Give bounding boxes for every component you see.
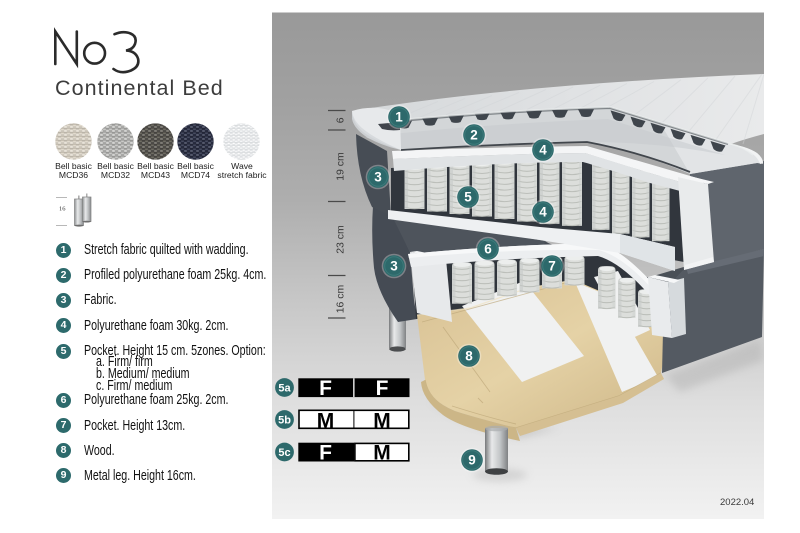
svg-text:M: M — [317, 410, 335, 433]
svg-text:F: F — [376, 377, 389, 400]
svg-text:3: 3 — [390, 259, 398, 274]
svg-text:2: 2 — [470, 128, 478, 143]
svg-text:4: 4 — [539, 143, 547, 158]
svg-text:3: 3 — [374, 170, 382, 185]
svg-text:7: 7 — [548, 259, 556, 274]
svg-text:6: 6 — [334, 117, 346, 123]
svg-text:F: F — [319, 442, 332, 465]
svg-text:5: 5 — [464, 190, 472, 205]
svg-text:1: 1 — [395, 110, 403, 125]
svg-text:5c: 5c — [278, 447, 290, 459]
svg-text:5b: 5b — [278, 415, 291, 427]
svg-text:8: 8 — [465, 349, 473, 364]
svg-text:5a: 5a — [278, 383, 291, 395]
svg-text:9: 9 — [468, 453, 476, 468]
svg-text:23 cm: 23 cm — [334, 225, 346, 254]
svg-text:F: F — [319, 377, 332, 400]
svg-text:19 cm: 19 cm — [334, 152, 346, 181]
svg-text:6: 6 — [484, 242, 492, 257]
svg-text:16 cm: 16 cm — [334, 284, 346, 313]
svg-text:4: 4 — [539, 205, 547, 220]
svg-text:M: M — [373, 442, 391, 465]
svg-text:M: M — [373, 410, 391, 433]
